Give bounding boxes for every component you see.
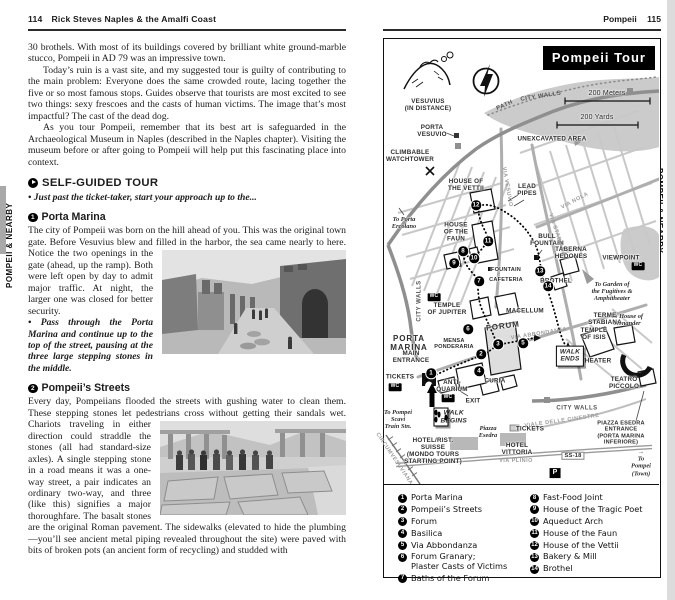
- legend-label: Aqueduct Arch: [543, 517, 603, 526]
- map-label-parking: P: [550, 468, 561, 478]
- section-1-heading: 1 Porta Marina: [28, 211, 346, 223]
- legend-item-11: 11House of the Faun: [530, 529, 658, 539]
- map-label-cafeteria: CAFETERIA: [489, 277, 523, 283]
- section-title: Pompeii: [603, 14, 636, 24]
- legend-number: 13: [530, 553, 539, 562]
- map-label-scale-meters: 200 Meters: [588, 90, 625, 98]
- legend-number: 1: [398, 494, 407, 503]
- tour-intro-note: • Just past the ticket-taker, start your…: [28, 192, 346, 203]
- paragraph: Today’s ruin is a vast site, and my sugg…: [28, 65, 346, 122]
- map-label-piazza-esedra-entrance: PIAZZA ESEDRAENTRANCE(PORTA MARINAINFERI…: [597, 421, 644, 446]
- map-label-antiquarium: ANTI-QUARIUM: [436, 379, 467, 393]
- map-label-mensa-ponderaria: MENSAPONDERARIA: [434, 338, 474, 351]
- legend-item-6: 6Forum Granary; Plaster Casts of Victims: [398, 552, 526, 571]
- map-marker-5: 5: [518, 338, 528, 348]
- photo-stepping-stones-art: [160, 421, 346, 515]
- map-label-vesuvius: VESUVIUS(IN DISTANCE): [405, 98, 452, 112]
- legend-label: House of the Vettii: [543, 541, 619, 550]
- photo-stepping-stones: [160, 421, 346, 515]
- map-marker-12: 12: [471, 200, 481, 210]
- map-label-curia: CURIA: [485, 377, 506, 384]
- map-label-macellum: MACELLUM: [506, 307, 544, 314]
- section-1-body: The city of Pompeii was born on the hill…: [28, 225, 346, 317]
- left-page-header: 114 Rick Steves Naples & the Amalfi Coas…: [28, 14, 346, 31]
- map-label-piazza-esedra: PiazzaEsedra: [479, 425, 497, 439]
- legend-label: Pompeii’s Streets: [411, 505, 482, 514]
- map-label-terme-stabiana: TERMESTABIANA: [588, 312, 622, 326]
- legend-number: 9: [530, 505, 539, 514]
- map-label-forum: FORUM: [486, 320, 521, 333]
- legend-item-4: 4Basilica: [398, 529, 526, 539]
- legend-number: 7: [398, 574, 407, 583]
- map-marker-4: 4: [474, 366, 484, 376]
- map-label-path: PATH: [496, 99, 515, 112]
- page-edge-shading: [667, 0, 675, 600]
- section-2-body: Every day, Pompeiians flooded the street…: [28, 396, 346, 556]
- legend-label: Bakery & Mill: [543, 552, 597, 561]
- map-marker-3: 3: [493, 339, 503, 349]
- legend-item-7: 7Baths of the Forum: [398, 574, 526, 584]
- map-label-hotel-suisse: HOTEL/RIST.SUISSE(MONDO TOURSSTARTING PO…: [404, 437, 462, 465]
- book-spread: { "left_page": { "tab": "POMPEII & NEARB…: [0, 0, 675, 600]
- map-label-temple-of-isis: TEMPLEOF ISIS: [581, 327, 608, 341]
- map-label-city-walls-bottom: CITY WALLS: [556, 406, 597, 413]
- legend-number: 11: [530, 529, 539, 538]
- map-label-unexcavated: UNEXCAVATED AREA: [517, 135, 586, 142]
- legend-number: 3: [398, 517, 407, 526]
- stop-number-badge: 2: [28, 384, 38, 394]
- legend-number: 8: [530, 494, 539, 503]
- map-label-house-of-the-faun: HOUSEOF THEFAUN: [444, 221, 468, 242]
- page-number: 115: [647, 14, 661, 24]
- map-label-wc-viewpoint: WC: [632, 262, 645, 270]
- legend-number: 12: [530, 541, 539, 550]
- map-label-walk-begins: WALKBEGINS: [434, 408, 449, 427]
- map-marker-13: 13: [535, 266, 545, 276]
- map-label-wc-forum: WC: [428, 293, 441, 301]
- tour-arrow-icon: [28, 178, 38, 188]
- map-label-main-entrance: MAINENTRANCE: [393, 350, 430, 364]
- map-label-via-nola: VIA NOLA: [560, 191, 589, 211]
- legend-label: Forum: [411, 517, 437, 526]
- book-title: Rick Steves Naples & the Amalfi Coast: [51, 14, 216, 24]
- legend-column-left: 1Porta Marina2Pompeii’s Streets3Forum4Ba…: [398, 493, 526, 586]
- map-label-to-porta-ercolano: To PortaErcolano: [392, 216, 417, 230]
- map-marker-6: 6: [463, 324, 473, 334]
- map-label-scale-yards: 200 Yards: [580, 114, 613, 122]
- map-label-via-vesuvio: VIA VESUVIO: [500, 167, 513, 208]
- map-label-to-train: To PompeiScaviTrain Stn.: [384, 409, 412, 431]
- legend-label: House of the Tragic Poet: [543, 505, 642, 514]
- legend-item-9: 9House of the Tragic Poet: [530, 505, 658, 515]
- legend-number: 4: [398, 529, 407, 538]
- legend-item-13: 13Bakery & Mill: [530, 552, 658, 562]
- map-marker-7: 7: [474, 276, 484, 286]
- map-label-theater: THEATER: [581, 357, 612, 364]
- legend-item-1: 1Porta Marina: [398, 493, 526, 503]
- map-label-walk-ends: WALKENDS: [556, 346, 584, 367]
- map-label-lead-pipes: LEADPIPES: [517, 183, 537, 197]
- map-label-viewpoint: VIEWPOINT: [602, 254, 639, 261]
- map-marker-11: 11: [483, 236, 493, 246]
- map-label-exit: EXIT: [466, 397, 481, 404]
- section-2-heading: 2 Pompeii’s Streets: [28, 382, 346, 394]
- map-label-wc-tickets: WC: [389, 383, 402, 391]
- legend-column-right: 8Fast-Food Joint9House of the Tragic Poe…: [530, 493, 658, 576]
- legend-item-8: 8Fast-Food Joint: [530, 493, 658, 503]
- paragraph: 30 brothels. With most of its buildings …: [28, 42, 346, 65]
- page-number: 114: [28, 14, 42, 24]
- map-label-tickets-west: TICKETS: [386, 373, 414, 380]
- left-page: 114 Rick Steves Naples & the Amalfi Coas…: [28, 14, 346, 557]
- map-label-to-pompei-town: →ToPompei(Town): [631, 449, 651, 478]
- map-label-city-walls-top: CITY WALLS: [520, 90, 562, 103]
- right-page-header: Pompeii 115: [383, 14, 661, 31]
- map-label-fountain: FOUNTAIN: [491, 267, 521, 273]
- map-label-teatro-piccolo: TEATROPICCOLO: [609, 376, 639, 390]
- map-label-viale-delle-ginestre: VIALE DELLE GINESTRE: [524, 413, 600, 430]
- map-label-temple-of-jupiter: TEMPLEOF JUPITER: [427, 302, 466, 316]
- map-marker-14: 14: [543, 281, 553, 291]
- map-marker-2: 2: [476, 349, 486, 359]
- map-marker-8: 8: [458, 246, 468, 256]
- map-label-house-of-the-vettii: HOUSE OFTHE VETTII: [448, 178, 484, 192]
- legend-label: Baths of the Forum: [411, 574, 489, 583]
- legend-label: Via Abbondanza: [411, 541, 477, 550]
- pompeii-tour-map: Pompeii Tour VESUVIUS(IN DISTANCE)PATHCI…: [383, 38, 661, 578]
- photo-porta-marina: [162, 250, 346, 354]
- legend-number: 2: [398, 505, 407, 514]
- legend-label: Forum Granary; Plaster Casts of Victims: [411, 552, 507, 571]
- map-marker-1: 1: [426, 368, 436, 378]
- stop-number-badge: 1: [28, 213, 38, 223]
- paragraph: As you tour Pompeii, remember that its b…: [28, 122, 346, 168]
- legend-label: Fast-Food Joint: [543, 493, 603, 502]
- map-label-ss-18: SS-18: [561, 452, 584, 460]
- legend-item-2: 2Pompeii’s Streets: [398, 505, 526, 515]
- map-label-layer: VESUVIUS(IN DISTANCE)PATHCITY WALLS200 M…: [384, 39, 659, 484]
- legend-item-10: 10Aqueduct Arch: [530, 517, 658, 527]
- map-label-to-garden: To Garden ofthe Fugitives &Amphitheater: [592, 281, 633, 303]
- legend-number: 6: [398, 553, 407, 562]
- self-guided-tour-heading: SELF-GUIDED TOUR: [28, 177, 346, 189]
- legend-item-3: 3Forum: [398, 517, 526, 527]
- map-label-climbable-watchtower: CLIMBABLEWATCHTOWER: [386, 149, 434, 163]
- legend-label: Brothel: [543, 564, 573, 573]
- legend-number: 10: [530, 517, 539, 526]
- map-label-wc-antiquarium: WC: [442, 394, 455, 402]
- left-page-edge-tab: POMPEII & NEARBY: [5, 168, 19, 288]
- map-label-city-walls-left: CITY WALLS: [417, 280, 424, 321]
- map-label-hotel-vittoria: HOTELVITTORIA: [502, 442, 533, 456]
- map-label-via-plinio: VIA PLINIO: [499, 458, 533, 464]
- legend-item-12: 12House of the Vettii: [530, 541, 658, 551]
- legend-item-14: 14Brothel: [530, 564, 658, 574]
- legend-number: 14: [530, 565, 539, 574]
- legend-label: Porta Marina: [411, 493, 463, 502]
- legend-label: House of the Faun: [543, 529, 617, 538]
- map-marker-9: 9: [449, 258, 459, 268]
- legend-label: Basilica: [411, 529, 442, 538]
- photo-porta-marina-art: [162, 250, 346, 354]
- map-marker-10: 10: [469, 253, 479, 263]
- map-legend: 1Porta Marina2Pompeii’s Streets3Forum4Ba…: [384, 484, 659, 577]
- legend-item-5: 5Via Abbondanza: [398, 541, 526, 551]
- legend-number: 5: [398, 541, 407, 550]
- map-label-porta-vesuvio: PORTAVESUVIO: [417, 124, 446, 138]
